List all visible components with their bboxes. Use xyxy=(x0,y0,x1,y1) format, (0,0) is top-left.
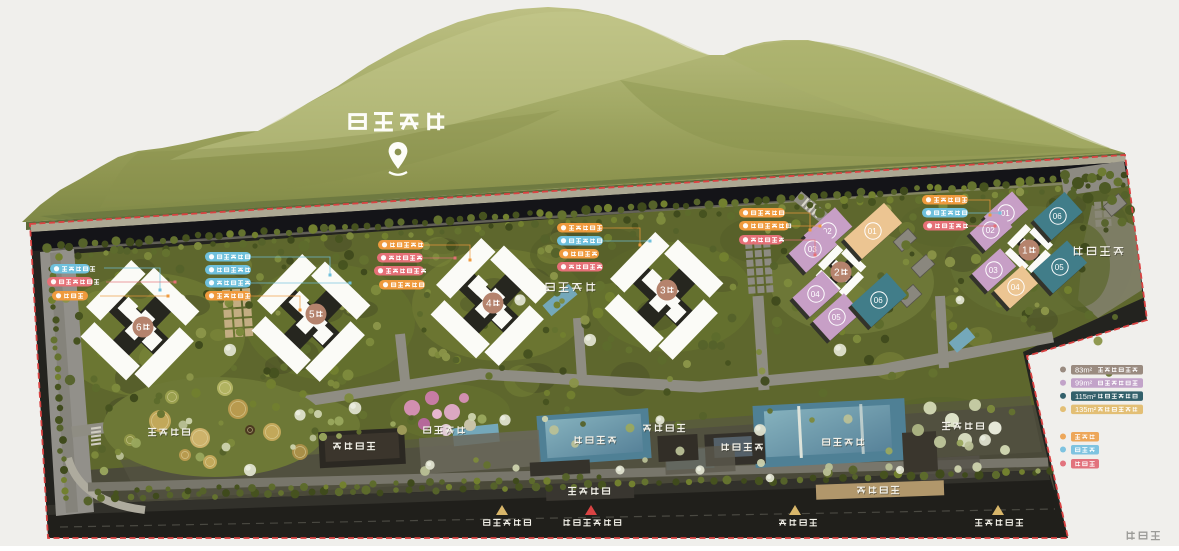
svg-text:6: 6 xyxy=(136,323,142,334)
svg-text:1: 1 xyxy=(1022,246,1028,257)
svg-text:03: 03 xyxy=(808,245,817,254)
svg-text:83m²: 83m² xyxy=(1075,366,1093,375)
svg-text:06: 06 xyxy=(874,296,883,305)
svg-text:04: 04 xyxy=(1011,283,1020,292)
svg-text:05: 05 xyxy=(1055,263,1064,272)
svg-text:5: 5 xyxy=(309,310,315,321)
svg-text:01: 01 xyxy=(868,227,877,236)
svg-text:05: 05 xyxy=(832,313,841,322)
svg-text:99m²: 99m² xyxy=(1075,379,1093,388)
svg-text:4: 4 xyxy=(486,299,492,310)
svg-text:03: 03 xyxy=(989,266,998,275)
svg-text:3: 3 xyxy=(660,286,666,297)
svg-text:2: 2 xyxy=(834,268,840,279)
svg-text:135m²: 135m² xyxy=(1075,405,1097,414)
svg-text:04: 04 xyxy=(811,290,820,299)
svg-text:115m²: 115m² xyxy=(1075,392,1096,401)
svg-text:06: 06 xyxy=(1053,212,1062,221)
